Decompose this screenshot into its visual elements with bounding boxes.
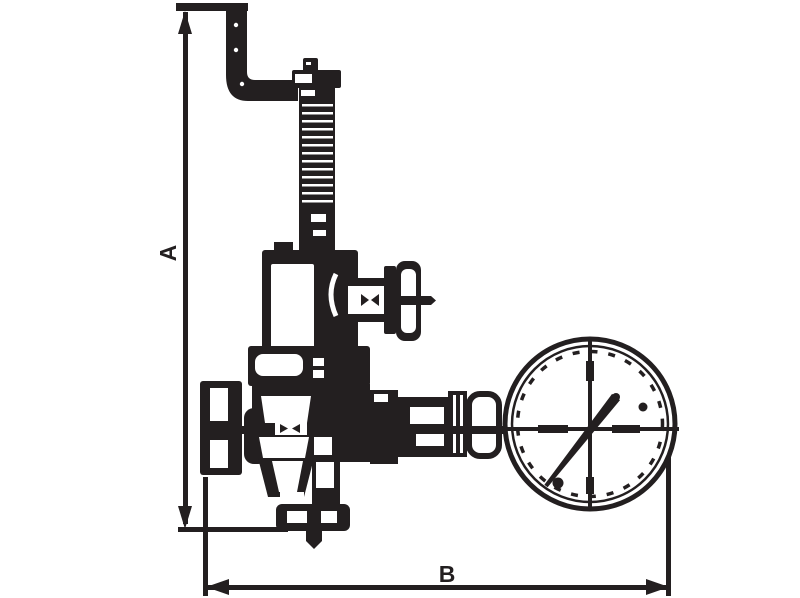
dimension-b-label: B (439, 561, 456, 587)
gauge-face-dot (639, 403, 648, 412)
pipe-highlight-dot (234, 23, 238, 27)
vent-pipe-elbow (226, 3, 298, 101)
handwheel-axle (396, 296, 421, 305)
gauge-pin-dot (553, 478, 564, 489)
stem-tip (421, 296, 436, 305)
gauge-tick-right (612, 425, 640, 433)
flange-window (255, 354, 303, 376)
gauge-tick-top (586, 361, 594, 381)
dimension-b-right-extension-line (666, 446, 671, 596)
flange-slot (313, 370, 324, 378)
cap-facet-upper (210, 388, 228, 421)
gauge-needle-head (612, 393, 620, 401)
dimension-a-arrow-up-icon (178, 11, 192, 34)
union-window-lower (416, 433, 444, 446)
flange-plate-window (321, 511, 337, 523)
dimension-b-left-extension-line (203, 477, 208, 596)
valve-body (252, 384, 370, 462)
nub-highlight (306, 62, 311, 65)
handwheel-hub-flange (384, 266, 396, 334)
outlet-stub-tip (306, 541, 322, 549)
centerline (202, 426, 508, 434)
gauge-tick-bottom (586, 477, 594, 494)
cap-highlight (295, 74, 312, 83)
outlet-gasket-line (280, 492, 304, 499)
dimension-a-label: A (155, 245, 181, 262)
flange-slot (313, 358, 324, 366)
tube-lower-window (311, 214, 326, 222)
thread-stripe (460, 395, 463, 453)
union-nut (469, 394, 499, 456)
body-facet-upper (261, 396, 311, 423)
pipe-highlight-dot (234, 48, 238, 52)
pressure-gauge (501, 339, 679, 509)
dimension-a-bottom-extension-line (178, 527, 288, 532)
outlet-side-window (316, 462, 334, 488)
bottom-outlet-flange (258, 455, 350, 549)
outlet-stub (306, 531, 322, 541)
union-window-upper (410, 407, 444, 424)
centerline-gap (275, 422, 307, 435)
adjusting-screw-column (292, 58, 341, 258)
dimension-b-arrow-right-icon (646, 579, 669, 595)
branch-bottom-wall (346, 314, 386, 322)
drawing-canvas: A B (0, 0, 800, 598)
dimension-b-arrow-left-icon (206, 579, 229, 595)
tube-lower-window (313, 230, 326, 236)
upper-flange (248, 346, 370, 386)
dimension-a-line (183, 12, 188, 524)
body-facet-lower (259, 437, 309, 458)
flange-plate-window (287, 511, 307, 523)
cap-facet-lower (210, 440, 228, 468)
boss-highlight (374, 394, 388, 402)
valve-technical-drawing: A B (0, 0, 800, 598)
pipe-highlight-dot (240, 82, 244, 86)
dimension-a-arrow-down-icon (178, 506, 192, 529)
bonnet-window (271, 264, 314, 352)
thread-stripe (453, 395, 456, 453)
dimension-b-line (207, 585, 668, 590)
tube-highlight (301, 90, 315, 96)
branch-top-wall (346, 278, 386, 286)
gauge-tick-left (538, 425, 568, 433)
threaded-section (448, 391, 467, 457)
